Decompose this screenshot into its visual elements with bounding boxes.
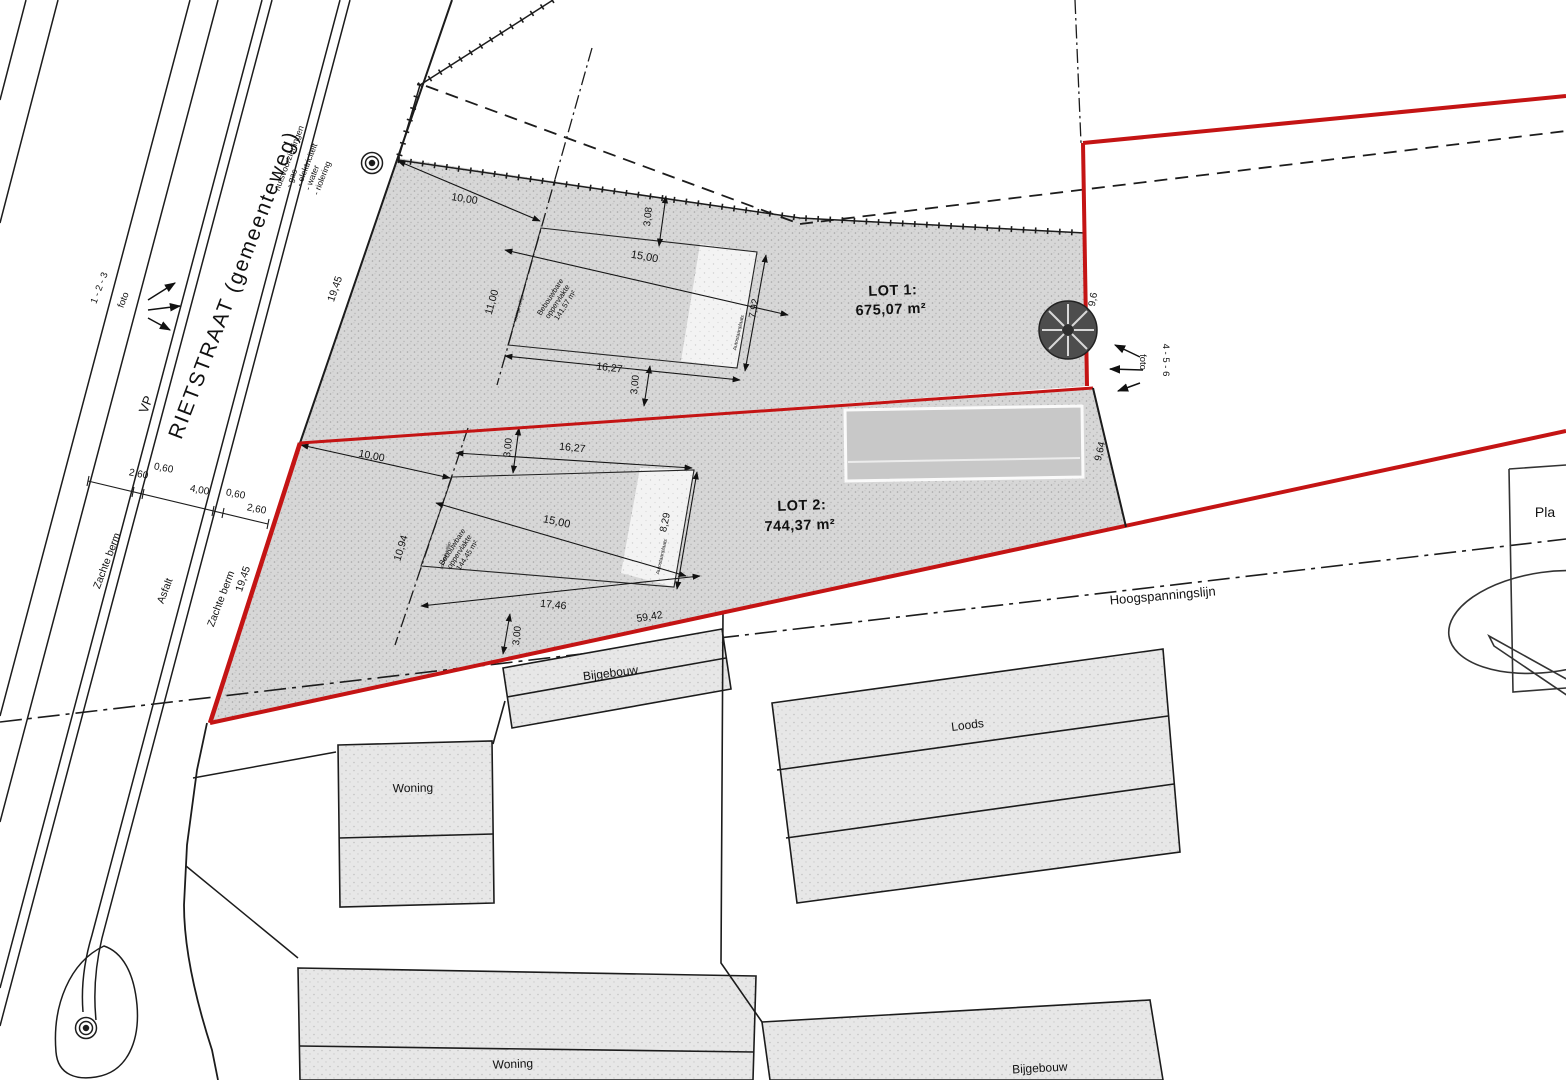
svg-text:744,37 m²: 744,37 m² (764, 517, 835, 535)
svg-text:9,6: 9,6 (1087, 291, 1100, 307)
building-label-woning2: Woning (492, 1056, 533, 1071)
svg-text:3,08: 3,08 (642, 206, 655, 227)
svg-text:1 - 2 - 3: 1 - 2 - 3 (89, 271, 111, 306)
building-woning1 (338, 741, 494, 907)
building-bijgebouw2 (762, 1000, 1163, 1080)
svg-text:3,00: 3,00 (629, 374, 642, 395)
legend-box-label: Pla (1535, 504, 1555, 520)
cadastral-plan-page: RIETSTRAAT (gemeenteweg) VP nutsvoorzien… (0, 0, 1566, 1080)
photo-note-right: 4 - 5 - 6 foto (1137, 344, 1171, 377)
legend-box (1442, 465, 1566, 700)
power-line-label: Hoogspanningslijn (1109, 583, 1216, 607)
building-label-woning1: Woning (393, 781, 434, 796)
neighbour-buildings (298, 612, 1180, 1080)
street-cross-dimension (87, 476, 269, 529)
surface-asphalt: Asfalt (155, 576, 176, 605)
building-loods (772, 649, 1180, 903)
existing-building-lot2 (845, 406, 1083, 481)
building-label-bijgebouw2: Bijgebouw (1012, 1060, 1068, 1077)
surface-right-berm: Zachte berm (205, 569, 237, 629)
axis-dashdot-line (1075, 0, 1081, 143)
svg-text:LOT 1:: LOT 1: (868, 282, 917, 300)
lot1-frontage-dim: 19,45 (325, 274, 345, 303)
svg-text:675,07 m²: 675,07 m² (855, 301, 926, 319)
survey-marker-icon (362, 153, 383, 174)
lot2-frontage-dim: 19,45 (233, 564, 253, 593)
svg-text:3,00: 3,00 (502, 437, 515, 458)
svg-text:foto: foto (116, 291, 132, 310)
svg-text:4,00: 4,00 (189, 483, 211, 498)
svg-text:foto: foto (1137, 354, 1148, 370)
svg-text:LOT 2:: LOT 2: (777, 497, 826, 515)
tree-icon (1039, 301, 1097, 359)
svg-text:0,60: 0,60 (153, 461, 175, 476)
photo-arrows-left (148, 283, 180, 330)
svg-text:2,60: 2,60 (246, 502, 268, 517)
svg-text:3,00: 3,00 (511, 625, 524, 646)
survey-marker-icon (76, 1018, 97, 1039)
svg-text:0,60: 0,60 (225, 487, 247, 502)
plan-drawing: RIETSTRAAT (gemeenteweg) VP nutsvoorzien… (0, 0, 1566, 1080)
svg-text:2,60: 2,60 (128, 467, 150, 482)
svg-text:4 - 5 - 6: 4 - 5 - 6 (1160, 344, 1171, 377)
street-cross-dims: 2,60 0,60 4,00 0,60 2,60 (128, 461, 268, 517)
